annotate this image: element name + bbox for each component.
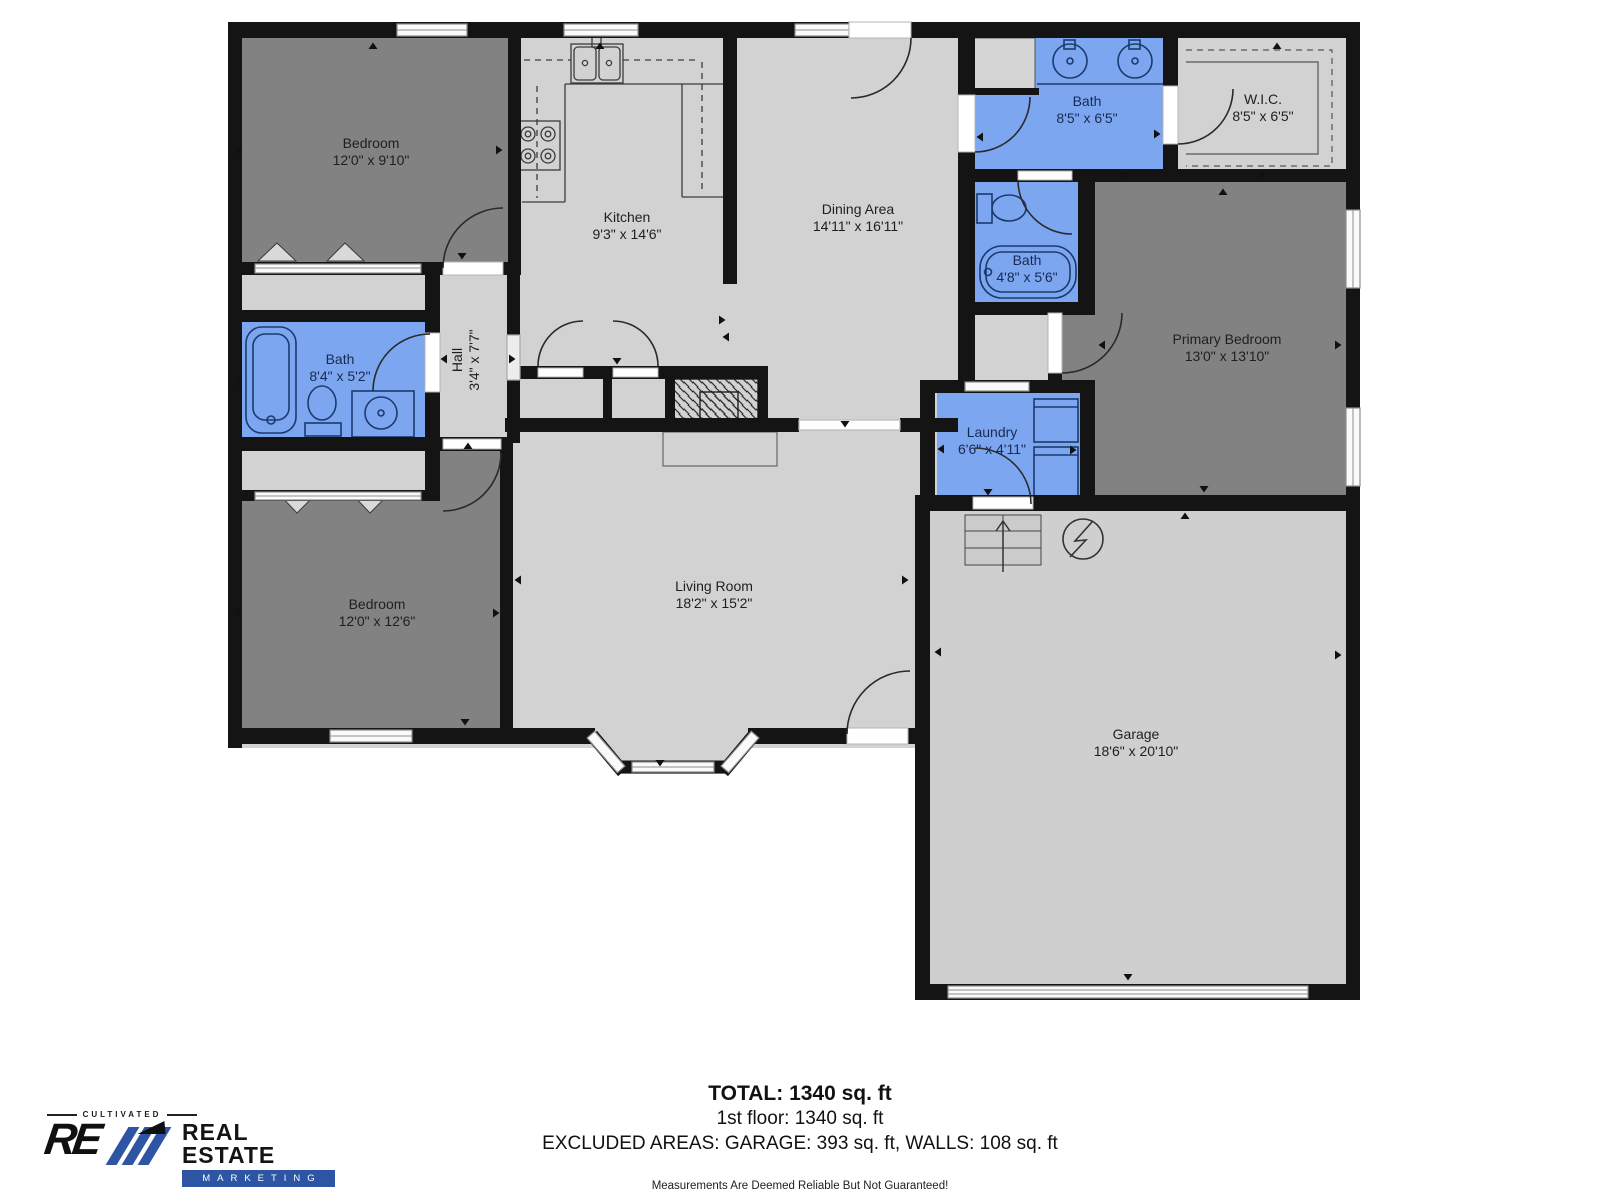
company-logo: CULTIVATED RE REAL ESTATE MARKETING (45, 1110, 345, 1187)
logo-mark: RE (45, 1121, 174, 1167)
logo-mark-letters: RE (41, 1115, 101, 1165)
room-label-kitchen: Kitchen9'3" x 14'6" (593, 209, 662, 243)
room-label-hall: Hall3'4" x 7'7" (449, 329, 483, 390)
garage-stairs (965, 515, 1041, 572)
room-label-bath-middle: Bath4'8" x 5'6" (996, 252, 1057, 286)
room-label-bath-left: Bath8'4" x 5'2" (309, 351, 370, 385)
room-label-garage: Garage18'6" x 20'10" (1094, 726, 1179, 760)
room-label-primary-bedroom: Primary Bedroom13'0" x 13'10" (1173, 331, 1282, 365)
room-label-living-room: Living Room18'2" x 15'2" (675, 578, 753, 612)
floor-plan-drawing (0, 0, 1600, 1200)
floor-plan-page: Bedroom12'0" x 9'10" Kitchen9'3" x 14'6"… (0, 0, 1600, 1200)
room-label-bath-top: Bath8'5" x 6'5" (1056, 93, 1117, 127)
logo-title: REAL ESTATE (182, 1121, 345, 1167)
total-area-text: TOTAL: 1340 sq. ft (0, 1082, 1600, 1106)
room-label-wic: W.I.C.8'5" x 6'5" (1232, 91, 1293, 125)
logo-subtitle: MARKETING (182, 1170, 335, 1187)
room-label-dining-area: Dining Area14'11" x 16'11" (813, 201, 903, 235)
room-label-laundry: Laundry6'6" x 4'11" (958, 424, 1026, 458)
tagline-rule-right (167, 1114, 197, 1116)
room-label-bedroom-2: Bedroom12'0" x 12'6" (339, 596, 416, 630)
room-label-bedroom-1: Bedroom12'0" x 9'10" (333, 135, 410, 169)
